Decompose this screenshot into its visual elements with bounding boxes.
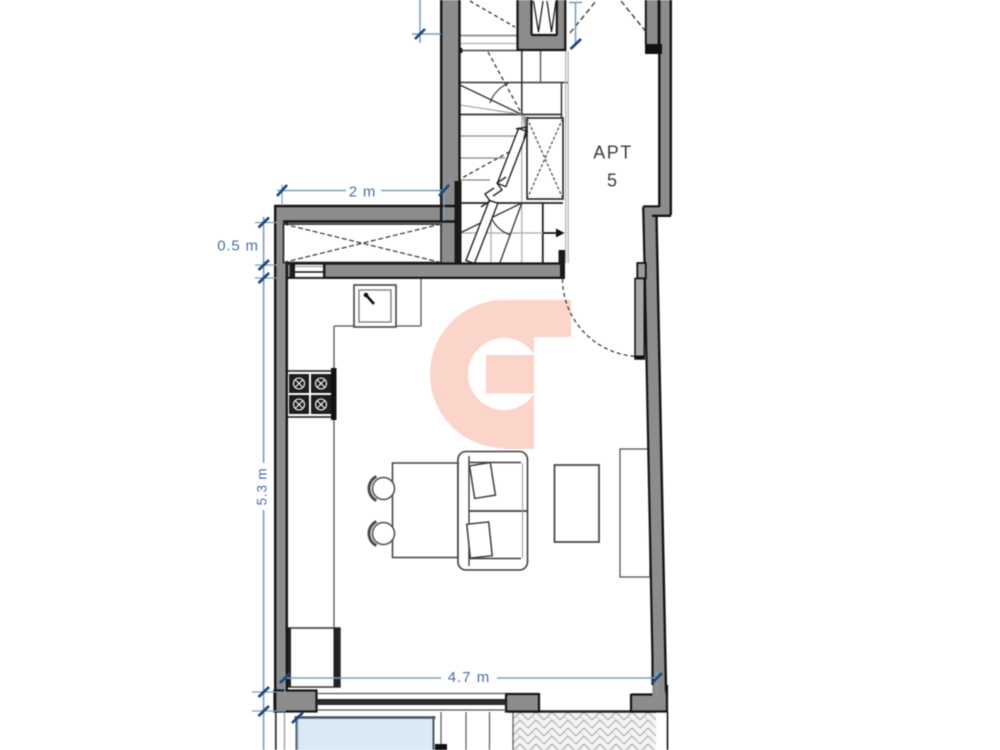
svg-text:5: 5 <box>607 171 617 191</box>
svg-text:5.3 m: 5.3 m <box>255 468 270 506</box>
svg-text:0.5 m: 0.5 m <box>217 238 259 255</box>
svg-text:4.7 m: 4.7 m <box>448 669 491 686</box>
svg-text:APT: APT <box>593 143 633 163</box>
svg-text:2 m: 2 m <box>349 184 376 201</box>
